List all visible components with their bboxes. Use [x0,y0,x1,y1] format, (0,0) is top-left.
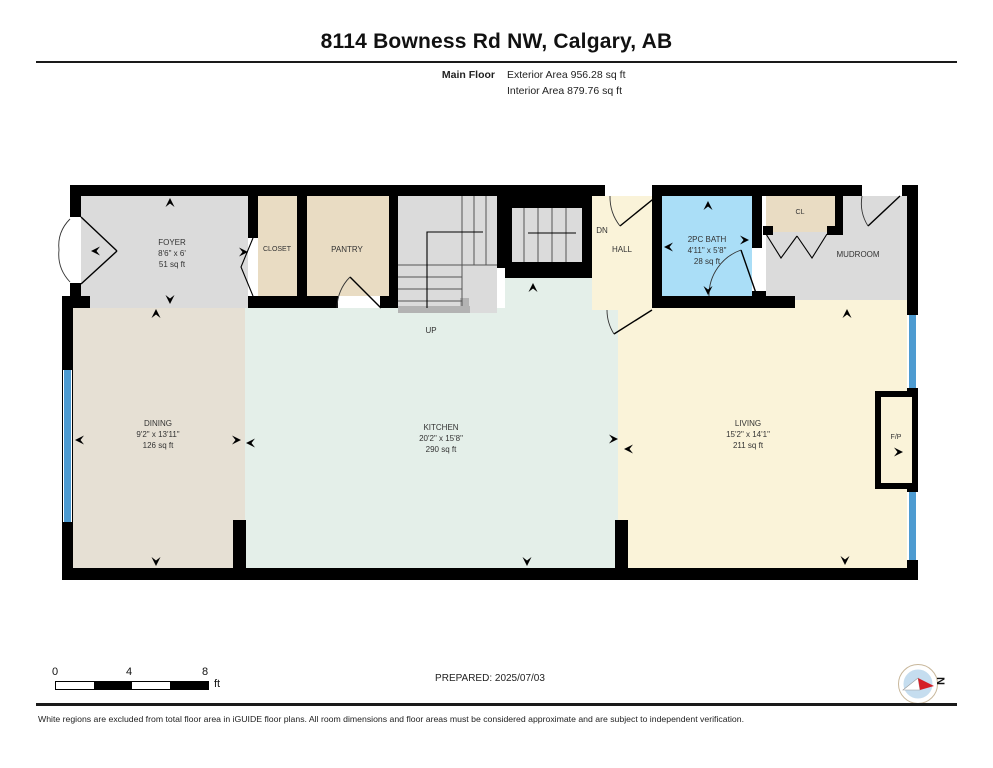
wall [907,185,918,315]
room-label-hall: HALL [612,244,632,255]
scale-unit: ft [214,678,220,690]
wall [297,196,307,308]
stairs-up-floor [398,196,497,313]
window-dining [63,370,72,522]
wall [752,196,762,248]
wall [652,296,795,308]
scale-tick: 0 [52,666,58,678]
wall [652,185,662,296]
interior-area-label: Interior Area 879.76 sq ft [507,85,622,97]
living-room-passage-floor [795,300,907,310]
wall [752,291,766,308]
wall [657,185,862,196]
room-label-mudroom: MUDROOM [836,249,879,260]
wall [70,185,81,217]
room-label-kitchen: KITCHEN 20'2" x 15'8" 290 sq ft [419,422,463,455]
wall [512,185,582,208]
scale-tick: 4 [126,666,132,678]
wall [615,520,628,568]
room-label-pantry: PANTRY [331,244,363,255]
room-label-foyer: FOYER 8'6" x 6' 51 sq ft [158,237,186,270]
footer-divider [36,703,957,706]
floor-label: Main Floor [375,69,495,81]
wall [505,262,592,278]
kitchen-upper-floor [505,278,592,310]
wall [763,226,773,235]
window-living-lower [908,492,917,560]
room-label-dining: DINING 9'2" x 13'11" 126 sq ft [136,418,179,451]
wall [248,296,338,308]
stairs-down-label: DN [596,225,608,236]
room-label-cl: CL [796,207,805,218]
room-label-closet: CLOSET [263,244,291,255]
scale-bar-segments [55,681,209,690]
scale-bar: 0 4 8 ft [55,666,285,696]
floor-plan-page: 8114 Bowness Rd NW, Calgary, AB Main Flo… [0,0,993,768]
stairs-down-floor [512,208,582,262]
compass-north-label: N [934,677,946,685]
wall [389,196,398,308]
fireplace-label: F/P [891,432,902,443]
wall [582,185,592,278]
window-living-upper [908,315,917,388]
wall [233,520,246,568]
wall [248,196,258,238]
wall [907,560,918,580]
stairs-up-label: UP [425,325,436,336]
wall [827,226,843,235]
exterior-area-label: Exterior Area 956.28 sq ft [507,69,625,81]
room-label-bath: 2PC BATH 4'11" x 5'8" 28 sq ft [688,234,727,267]
scale-tick: 8 [202,666,208,678]
prepared-date: PREPARED: 2025/07/03 [370,673,610,684]
wall [497,185,512,268]
header-divider [36,61,957,63]
footer-disclaimer: White regions are excluded from total fl… [38,714,968,724]
wall [62,568,918,580]
mudroom-floor-right [843,196,907,300]
room-label-living: LIVING 15'2" x 14'1" 211 sq ft [726,418,770,451]
page-title: 8114 Bowness Rd NW, Calgary, AB [0,30,993,54]
wall [835,185,843,232]
